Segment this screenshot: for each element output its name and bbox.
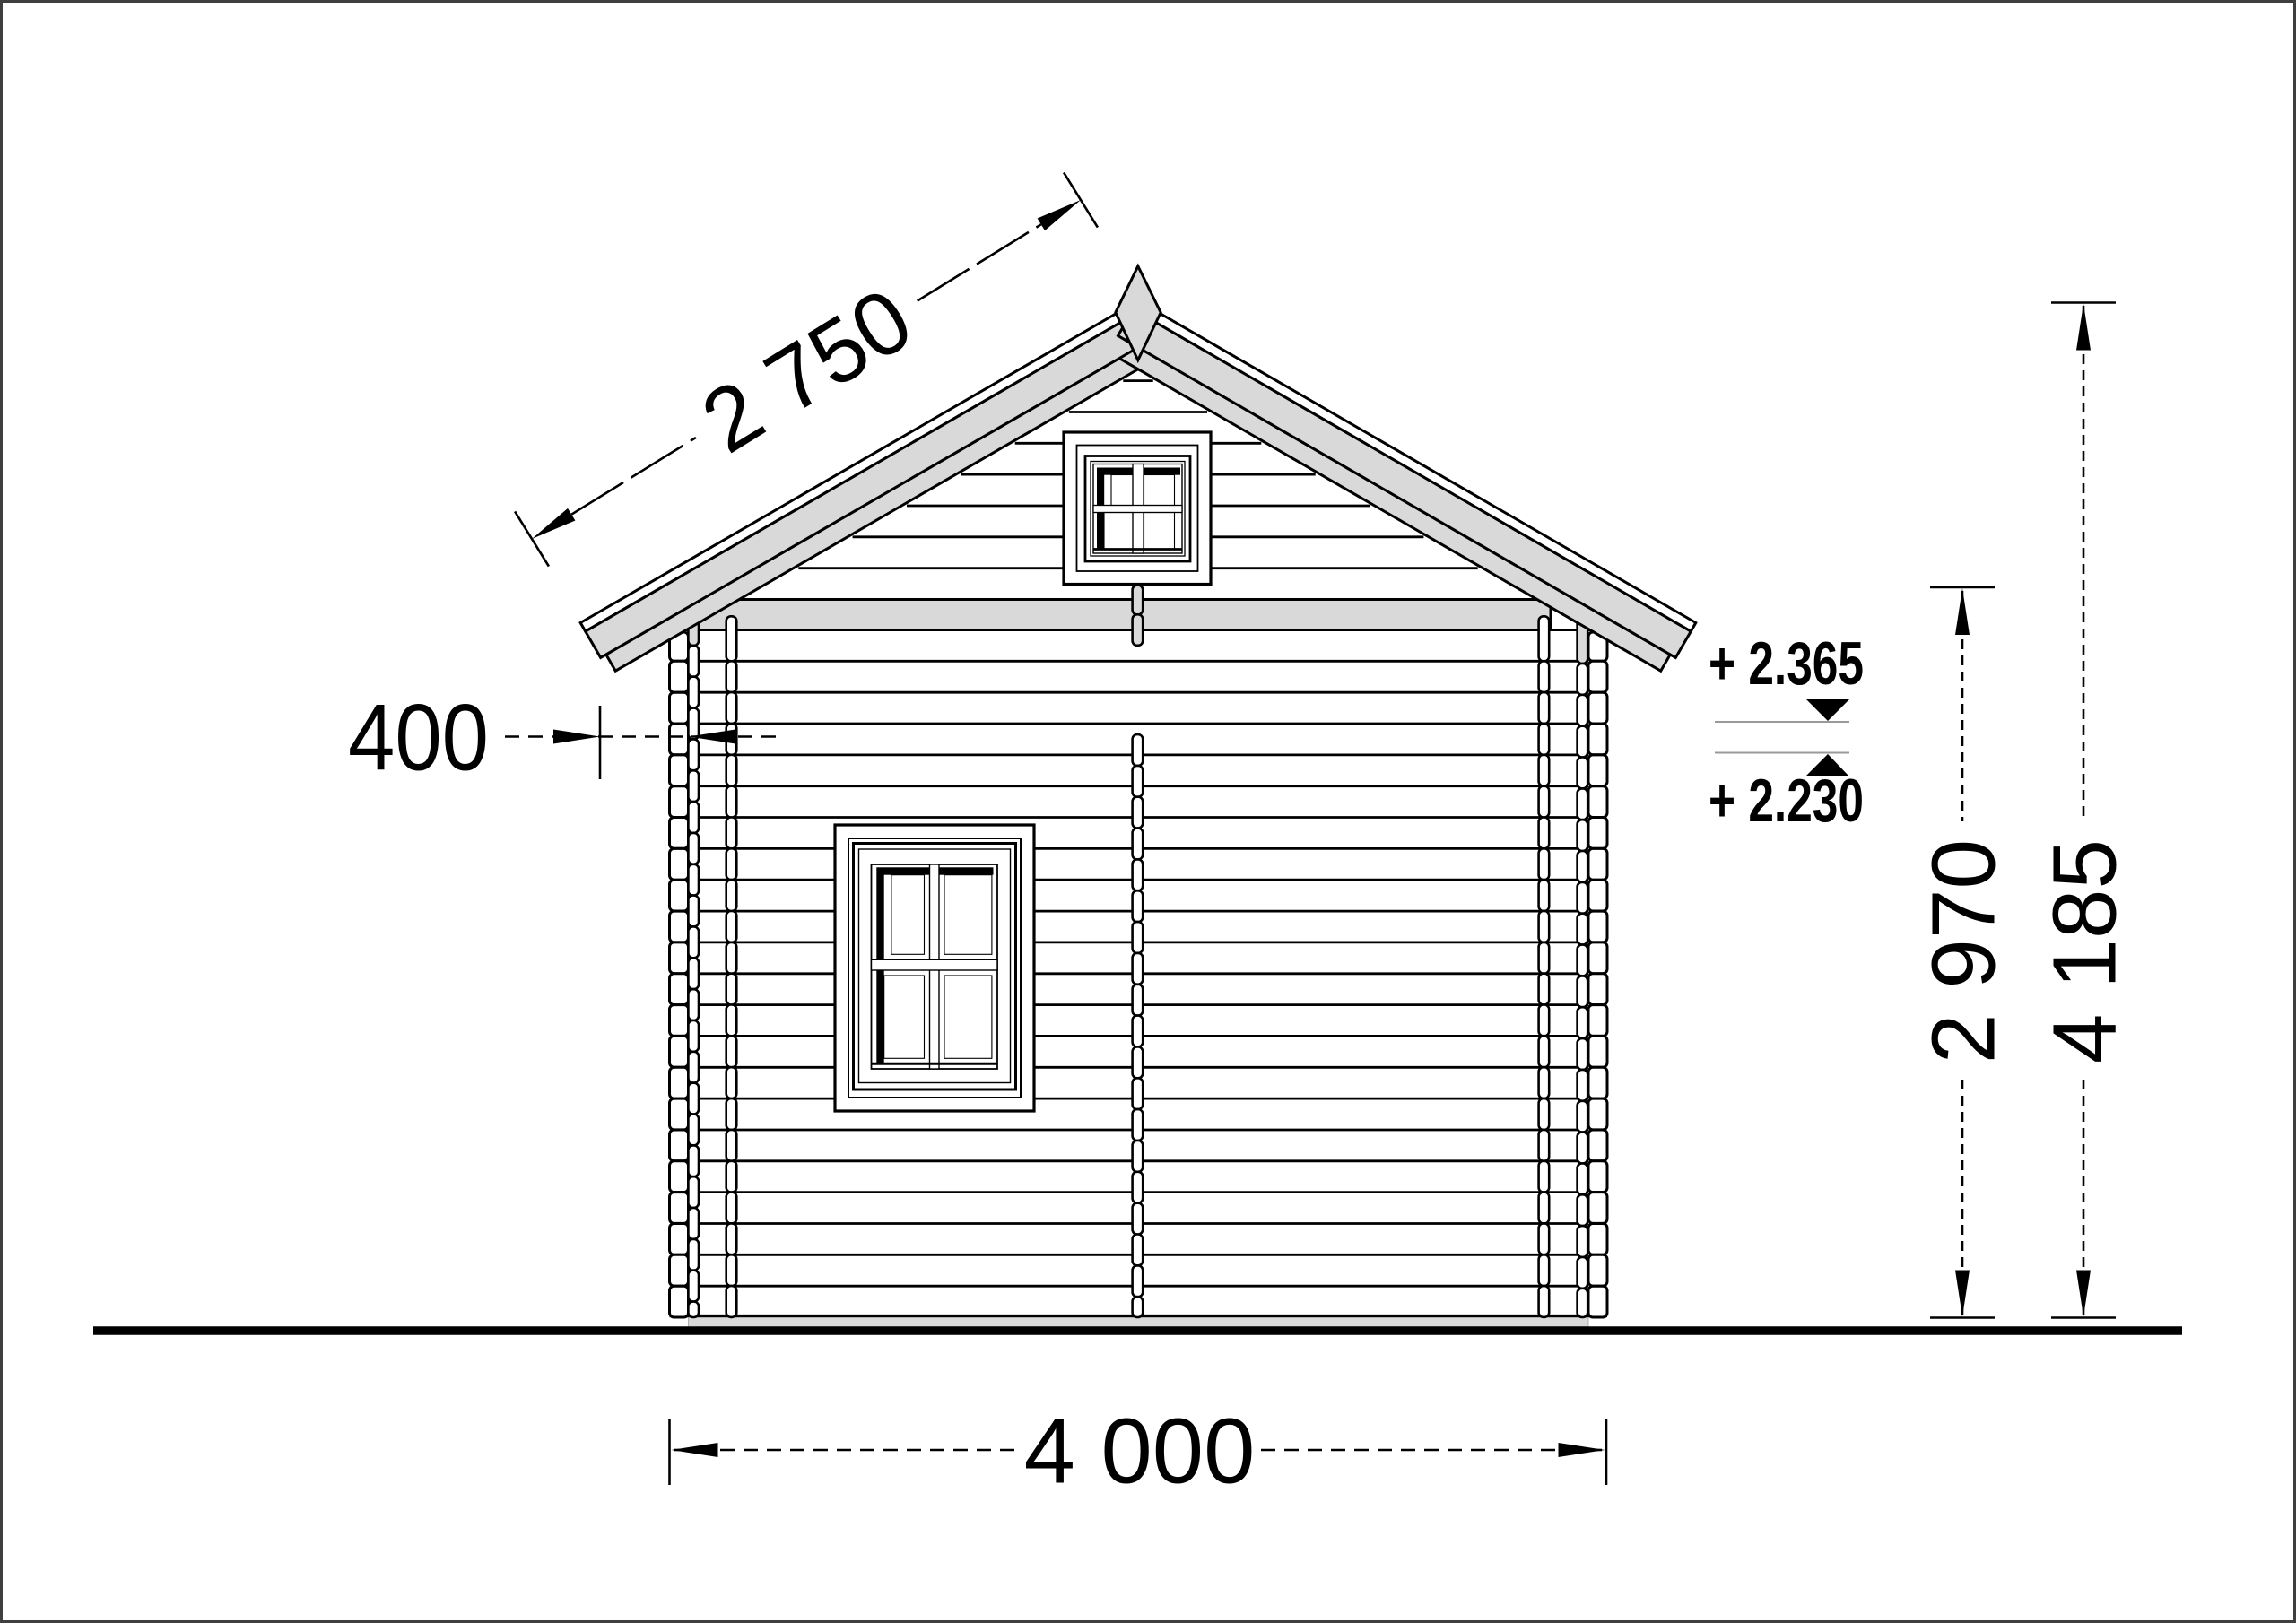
svg-text:2 970: 2 970 — [1914, 839, 2014, 1063]
svg-text:400: 400 — [348, 686, 489, 791]
svg-text:4 185: 4 185 — [2035, 839, 2135, 1063]
svg-text:+ 2.365: + 2.365 — [1709, 629, 1864, 698]
svg-text:+ 2.230: + 2.230 — [1709, 767, 1864, 835]
svg-text:4 000: 4 000 — [1024, 1400, 1256, 1503]
